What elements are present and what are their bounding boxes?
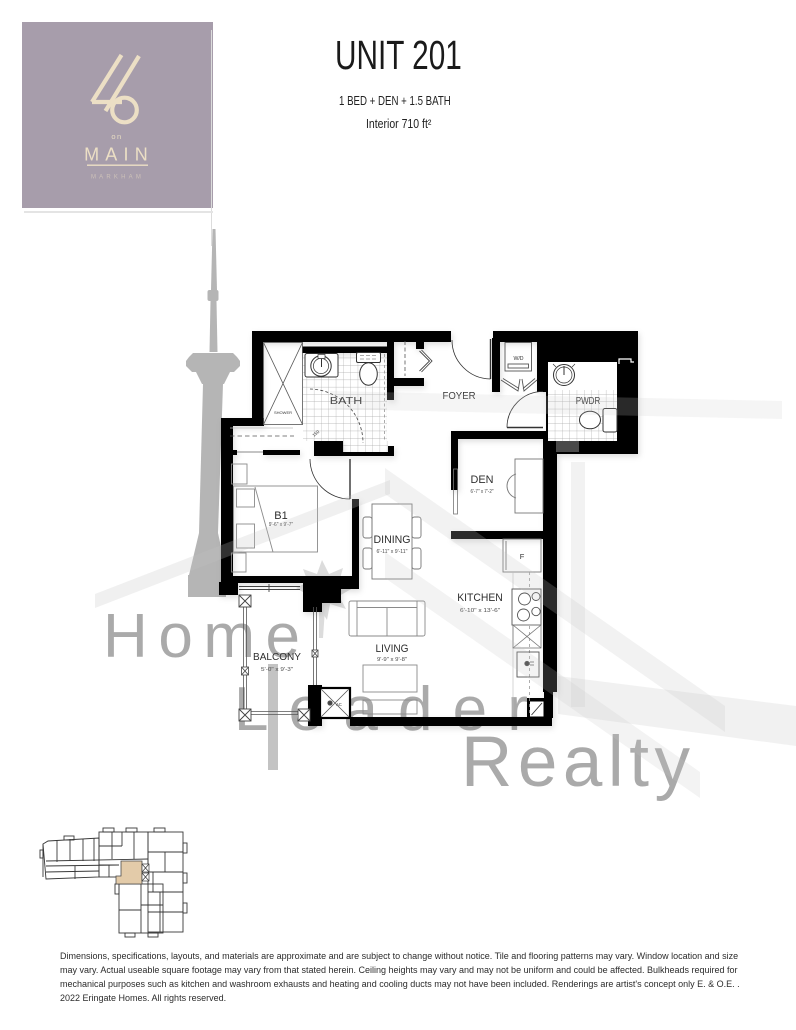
- svg-text:DINING: DINING: [374, 534, 411, 546]
- svg-text:6'-11" x 9'-11": 6'-11" x 9'-11": [377, 549, 408, 555]
- svg-text:W/D: W/D: [513, 356, 523, 362]
- svg-text:BALCONY: BALCONY: [253, 652, 301, 663]
- svg-text:DEN: DEN: [471, 474, 494, 486]
- svg-text:LIVING: LIVING: [376, 643, 409, 655]
- svg-text:B1: B1: [274, 510, 287, 522]
- svg-text:5'-0" x 9'-3": 5'-0" x 9'-3": [261, 667, 293, 673]
- svg-text:9'-9" x 9'-8": 9'-9" x 9'-8": [377, 657, 407, 663]
- svg-text:SHOWER: SHOWER: [274, 410, 292, 415]
- svg-text:6'-7" x 7'-2": 6'-7" x 7'-2": [471, 489, 494, 495]
- svg-text:KITCHEN: KITCHEN: [457, 592, 503, 604]
- svg-text:AC: AC: [336, 702, 342, 707]
- svg-text:F: F: [520, 552, 525, 561]
